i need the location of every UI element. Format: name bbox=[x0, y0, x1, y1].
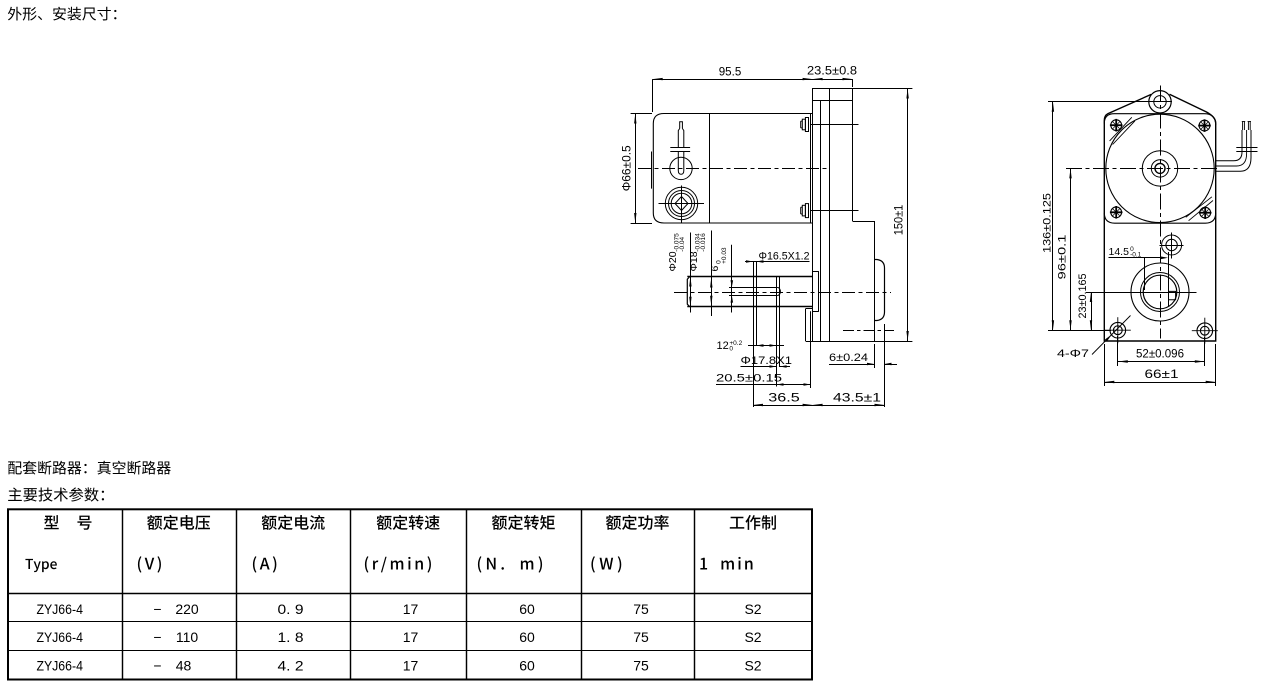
svg-text:Φ18: Φ18 bbox=[688, 251, 700, 271]
svg-text:43.5±1: 43.5±1 bbox=[833, 393, 881, 405]
svg-text:-0.1: -0.1 bbox=[1130, 252, 1142, 259]
svg-text:23±0.165: 23±0.165 bbox=[1077, 274, 1089, 319]
svg-text:20.5±0.15: 20.5±0.15 bbox=[716, 372, 782, 384]
svg-text:−: − bbox=[153, 629, 161, 645]
svg-text:95.5: 95.5 bbox=[719, 67, 742, 79]
svg-text:−: − bbox=[153, 658, 161, 674]
svg-text:4-Φ7: 4-Φ7 bbox=[1057, 348, 1089, 360]
svg-text:12: 12 bbox=[717, 340, 729, 352]
svg-text:75: 75 bbox=[633, 629, 649, 645]
svg-text:23.5±0.8: 23.5±0.8 bbox=[807, 66, 857, 78]
svg-text:S2: S2 bbox=[744, 658, 761, 674]
svg-text:60: 60 bbox=[519, 658, 535, 674]
svg-text:Φ17.8X1: Φ17.8X1 bbox=[741, 355, 793, 367]
svg-text:ZYJ66-4: ZYJ66-4 bbox=[36, 658, 83, 674]
svg-text:52±0.096: 52±0.096 bbox=[1136, 349, 1184, 361]
svg-text:−: − bbox=[153, 601, 161, 617]
svg-text:ZYJ66-4: ZYJ66-4 bbox=[36, 629, 83, 645]
svg-text:60: 60 bbox=[519, 629, 535, 645]
svg-text:75: 75 bbox=[633, 601, 649, 617]
svg-text:17: 17 bbox=[403, 601, 419, 617]
svg-text:66±1: 66±1 bbox=[1145, 369, 1179, 381]
svg-text:Φ66±0.5: Φ66±0.5 bbox=[622, 145, 634, 191]
svg-text:75: 75 bbox=[633, 658, 649, 674]
svg-text:S2: S2 bbox=[744, 629, 761, 645]
svg-text:0. 9: 0. 9 bbox=[278, 601, 304, 617]
svg-text:136±0.125: 136±0.125 bbox=[1041, 193, 1053, 253]
svg-text:S2: S2 bbox=[744, 601, 761, 617]
svg-text:17: 17 bbox=[403, 629, 419, 645]
svg-text:Φ16.5X1.2: Φ16.5X1.2 bbox=[759, 250, 810, 262]
svg-text:220: 220 bbox=[175, 601, 199, 617]
svg-text:6: 6 bbox=[709, 266, 721, 272]
svg-text:48: 48 bbox=[176, 658, 192, 674]
svg-text:110: 110 bbox=[176, 629, 199, 645]
svg-text:96±0.1: 96±0.1 bbox=[1057, 235, 1069, 280]
svg-text:150±1: 150±1 bbox=[894, 205, 906, 236]
svg-text:17: 17 bbox=[403, 658, 419, 674]
svg-text:-0.075: -0.075 bbox=[674, 233, 681, 252]
svg-text:Φ20: Φ20 bbox=[667, 251, 679, 271]
svg-text:0: 0 bbox=[729, 346, 733, 353]
svg-text:0: 0 bbox=[715, 260, 722, 264]
svg-text:14.5: 14.5 bbox=[1109, 246, 1130, 258]
svg-text:4. 2: 4. 2 bbox=[278, 658, 304, 674]
svg-text:-0.034: -0.034 bbox=[695, 233, 702, 252]
svg-text:1. 8: 1. 8 bbox=[278, 629, 304, 645]
svg-text:36.5: 36.5 bbox=[768, 393, 800, 405]
svg-text:ZYJ66-4: ZYJ66-4 bbox=[36, 601, 83, 617]
svg-text:6±0.24: 6±0.24 bbox=[829, 352, 868, 364]
svg-text:60: 60 bbox=[519, 601, 535, 617]
